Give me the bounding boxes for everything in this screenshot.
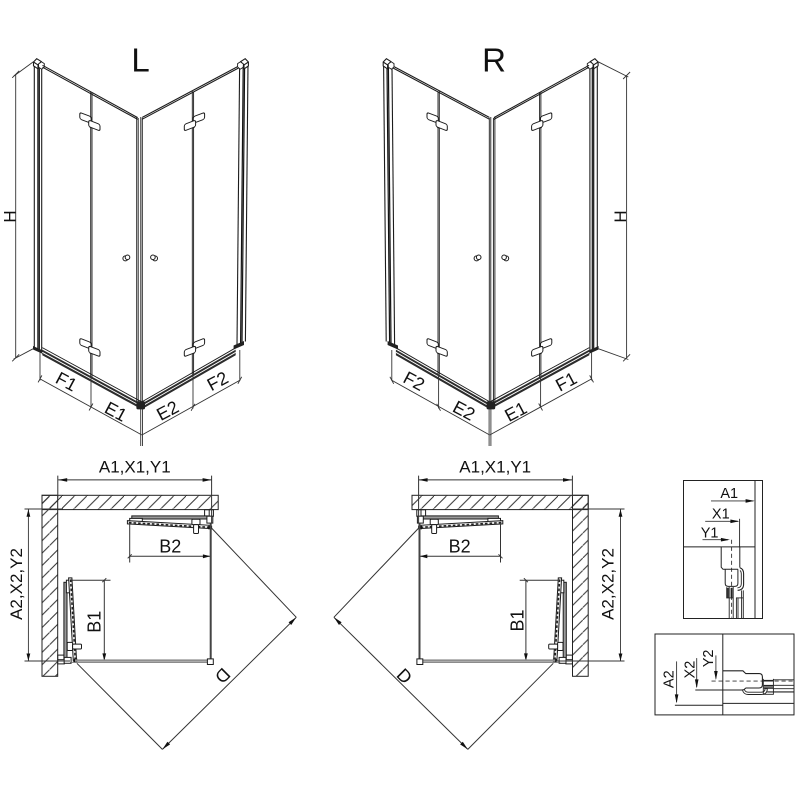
svg-text:B2: B2	[449, 536, 471, 556]
svg-text:X2: X2	[682, 661, 698, 679]
svg-text:A2,X2,Y2: A2,X2,Y2	[7, 548, 26, 620]
svg-text:B1: B1	[507, 609, 527, 631]
svg-text:R: R	[482, 42, 506, 79]
svg-text:A1,X1,Y1: A1,X1,Y1	[459, 458, 531, 477]
svg-text:A1: A1	[720, 486, 738, 502]
svg-text:L: L	[131, 42, 149, 79]
svg-text:X1: X1	[712, 507, 730, 523]
svg-text:Y2: Y2	[701, 650, 717, 668]
svg-text:B2: B2	[159, 536, 181, 556]
svg-text:A2: A2	[661, 670, 677, 688]
svg-text:B1: B1	[85, 611, 105, 633]
svg-text:H: H	[0, 210, 19, 222]
svg-text:H: H	[611, 210, 630, 222]
svg-text:Y1: Y1	[701, 525, 719, 541]
svg-text:A1,X1,Y1: A1,X1,Y1	[99, 458, 171, 477]
svg-text:A2,X2,Y2: A2,X2,Y2	[599, 548, 618, 620]
